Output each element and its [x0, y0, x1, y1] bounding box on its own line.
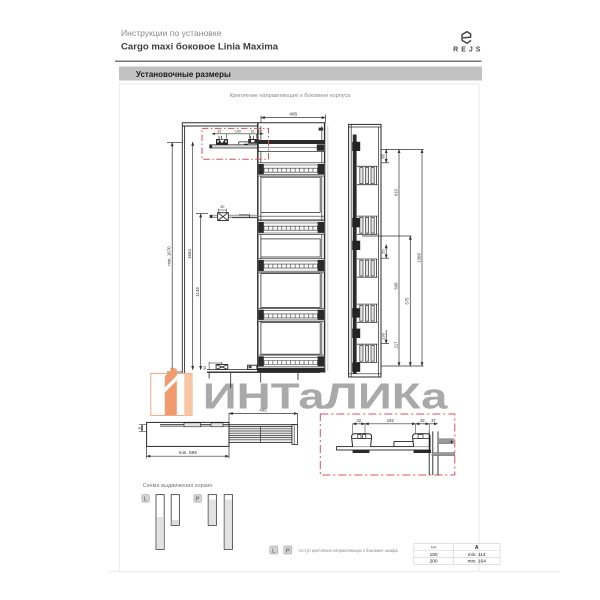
- svg-text:32: 32: [420, 418, 425, 423]
- svg-text:575: 575: [405, 297, 410, 305]
- svg-text:min. 164: min. 164: [467, 559, 486, 565]
- svg-text:32: 32: [250, 129, 254, 133]
- svg-text:P: P: [286, 548, 290, 554]
- svg-text:8: 8: [137, 427, 141, 429]
- svg-text:217: 217: [393, 341, 398, 349]
- svg-text:37: 37: [257, 129, 261, 133]
- svg-text:50: 50: [220, 205, 224, 209]
- svg-text:REJS: REJS: [453, 46, 483, 53]
- svg-text:Установочные размеры: Установочные размеры: [136, 70, 231, 79]
- svg-text:мм: мм: [431, 545, 437, 550]
- svg-text:L: L: [144, 497, 147, 503]
- svg-text:1149: 1149: [195, 287, 200, 297]
- svg-text:Схема выдвижения корзин: Схема выдвижения корзин: [143, 483, 213, 489]
- svg-text:Инструкции по установке: Инструкции по установке: [121, 28, 222, 38]
- svg-text:min. 1670: min. 1670: [167, 246, 172, 266]
- svg-text:130: 130: [381, 332, 386, 339]
- svg-text:495: 495: [289, 112, 297, 118]
- svg-text:Крепление направляющих к боков: Крепление направляющих к боковине корпус…: [230, 93, 352, 99]
- svg-text:50: 50: [203, 366, 207, 370]
- svg-text:610: 610: [393, 188, 398, 196]
- svg-text:192: 192: [387, 418, 395, 423]
- svg-text:1664: 1664: [187, 249, 192, 259]
- svg-text:ИНТаЛИКа: ИНТаЛИКа: [203, 376, 449, 416]
- svg-text:min. 114: min. 114: [468, 552, 486, 558]
- svg-text:A: A: [475, 545, 479, 551]
- svg-text:150: 150: [430, 552, 438, 558]
- svg-text:192: 192: [235, 129, 241, 133]
- svg-text:200: 200: [430, 559, 438, 565]
- svg-text:1368: 1368: [416, 253, 421, 263]
- svg-text:P: P: [196, 497, 200, 503]
- svg-text:50: 50: [381, 249, 386, 254]
- svg-text:608: 608: [393, 282, 398, 290]
- svg-text:min. 595: min. 595: [179, 450, 198, 456]
- svg-text:32: 32: [217, 129, 221, 133]
- svg-text:32: 32: [356, 418, 361, 423]
- svg-text:отступ крепления направляющих: отступ крепления направляющих к боковине…: [299, 548, 399, 553]
- svg-text:Cargo maxi боковое Linia Maxim: Cargo maxi боковое Linia Maxima: [121, 42, 279, 53]
- svg-text:37: 37: [431, 418, 436, 423]
- svg-text:90: 90: [381, 153, 386, 158]
